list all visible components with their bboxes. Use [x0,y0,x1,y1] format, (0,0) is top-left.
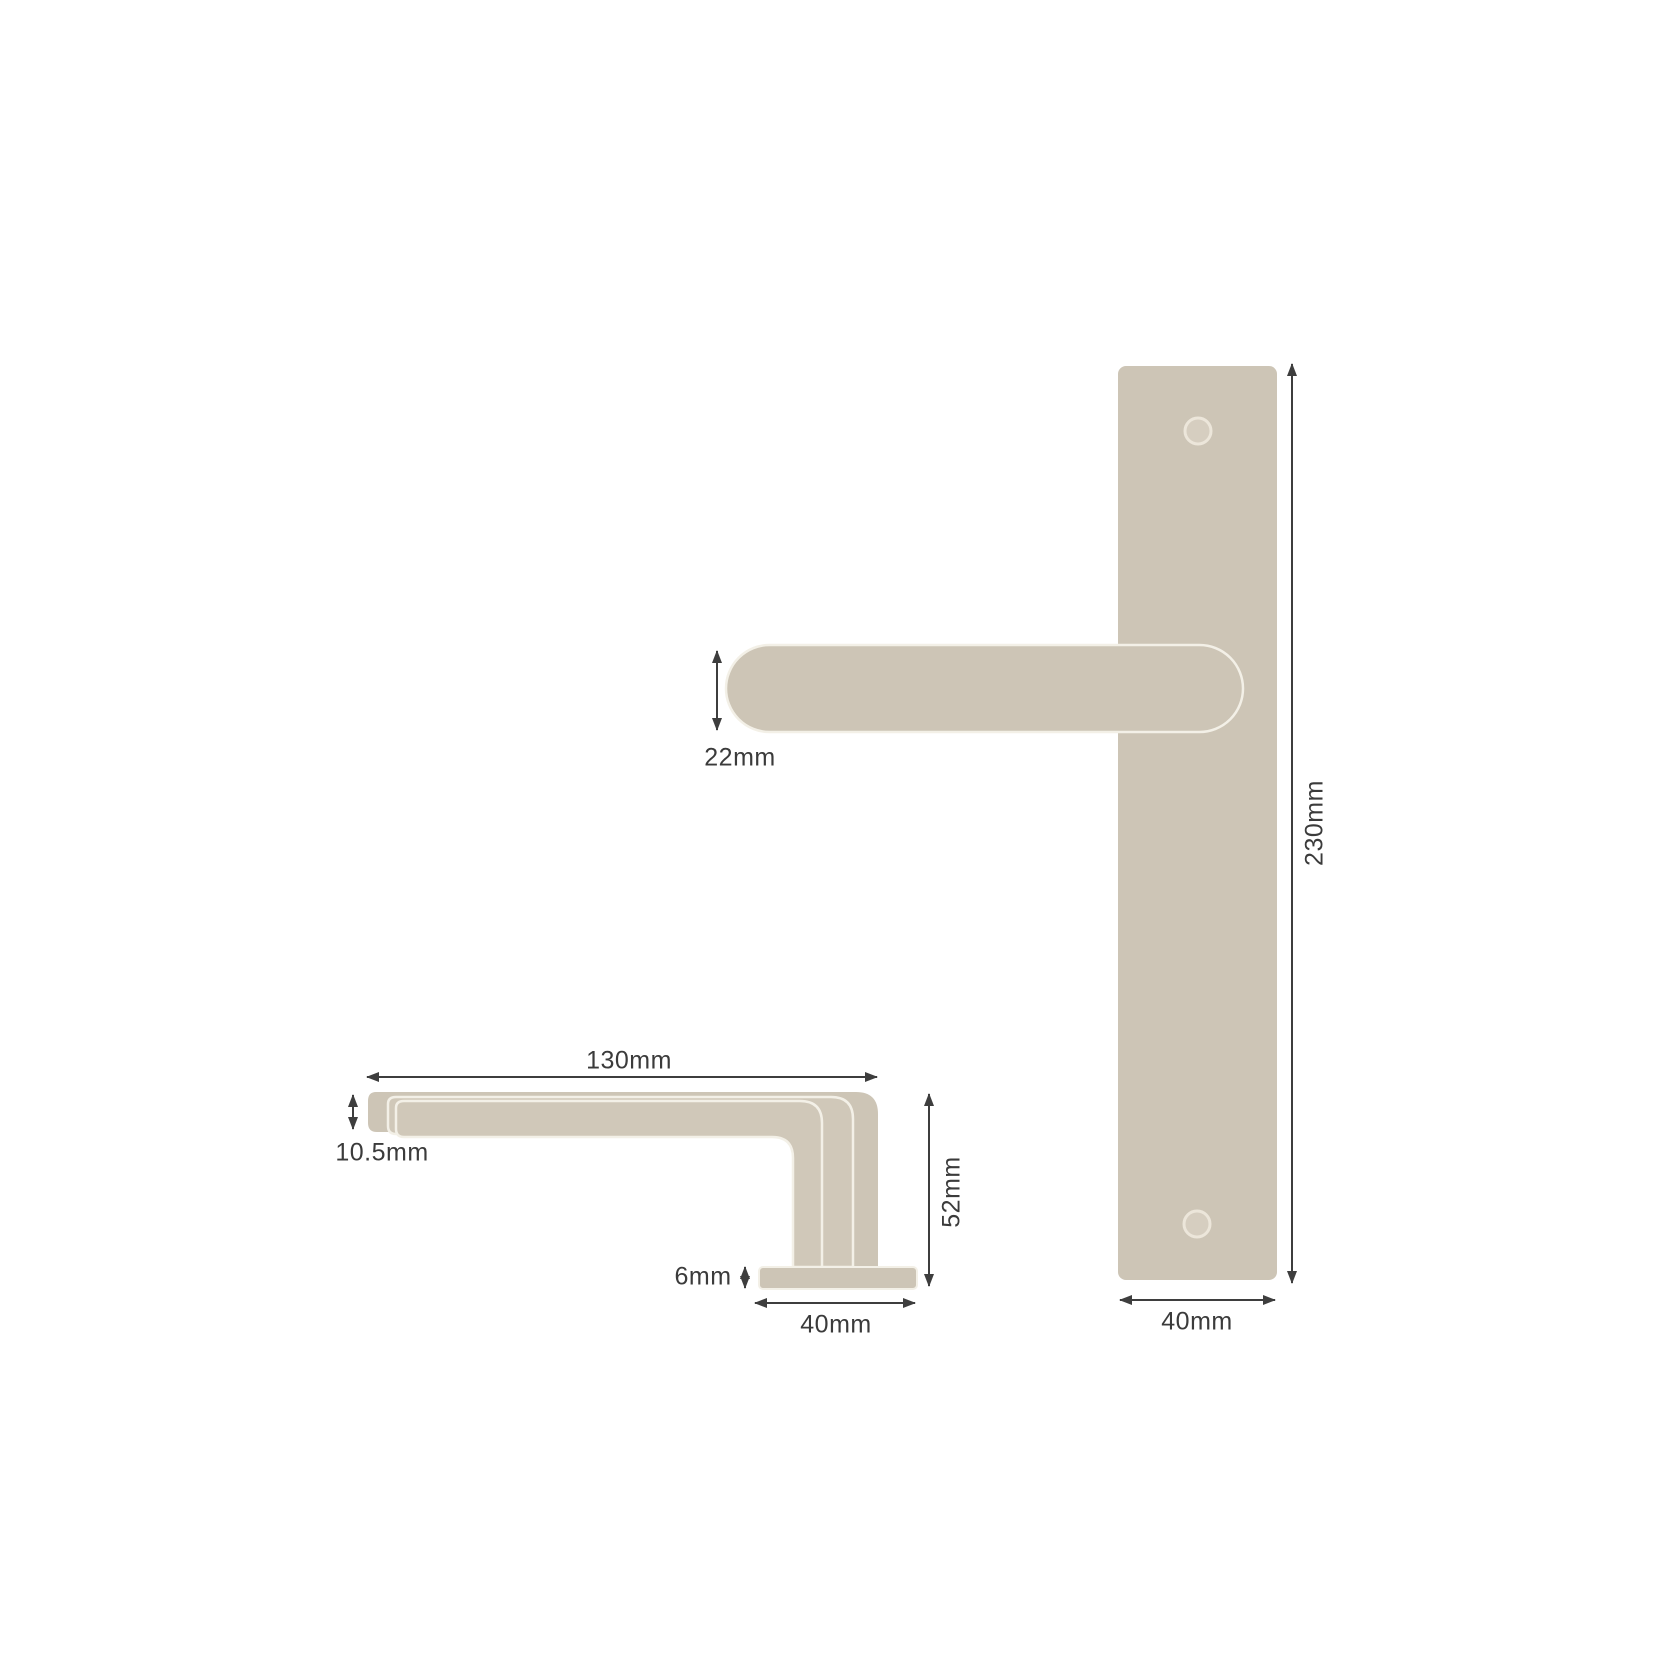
screw-hole-bottom [1184,1211,1210,1237]
dim-label-plate-height: 230mm [1301,780,1330,866]
dim-label-plate-width: 40mm [1161,1308,1232,1337]
screw-hole-top [1185,418,1211,444]
diagram-vector-layer [0,0,1676,1676]
dimension-diagram: 22mm 230mm 40mm 130mm 10.5mm 6mm 52mm 40… [0,0,1676,1676]
dim-label-rose-width: 40mm [800,1311,871,1340]
rose-base [759,1267,917,1289]
dim-label-lever-thickness: 10.5mm [335,1139,428,1168]
side-view [368,1092,917,1289]
dim-label-projection-height: 52mm [938,1156,967,1227]
dim-label-lever-length: 130mm [586,1047,672,1076]
dim-label-rose-height: 6mm [674,1263,731,1292]
backplate [1118,366,1277,1280]
lever-handle [726,645,1243,732]
lever-side-profile-front [396,1101,822,1267]
dim-label-lever-grip-height: 22mm [704,744,775,773]
